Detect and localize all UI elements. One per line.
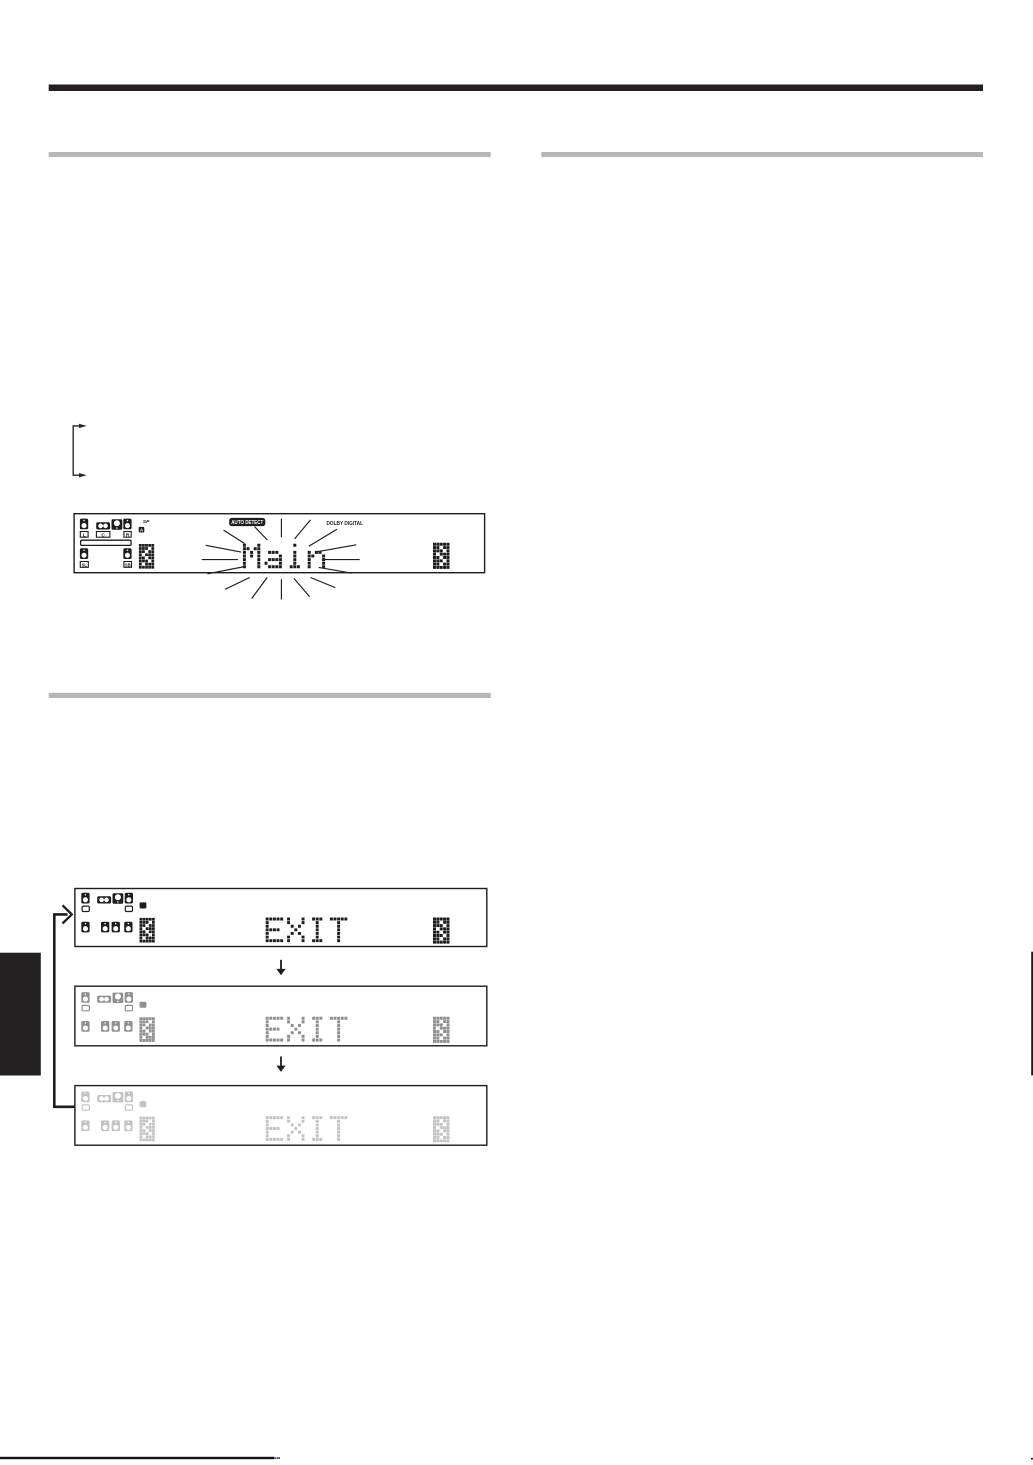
svg-text:DOLBY DIGITAL: DOLBY DIGITAL xyxy=(327,521,364,527)
svg-text:AUTO DETECT: AUTO DETECT xyxy=(231,520,264,526)
svg-text:L: L xyxy=(83,532,86,538)
svg-text:SB: SB xyxy=(125,562,131,567)
svg-text:C: C xyxy=(101,532,105,538)
svg-text:SL: SL xyxy=(82,562,88,567)
svg-text:SP: SP xyxy=(143,519,150,525)
svg-text:R: R xyxy=(126,532,130,538)
